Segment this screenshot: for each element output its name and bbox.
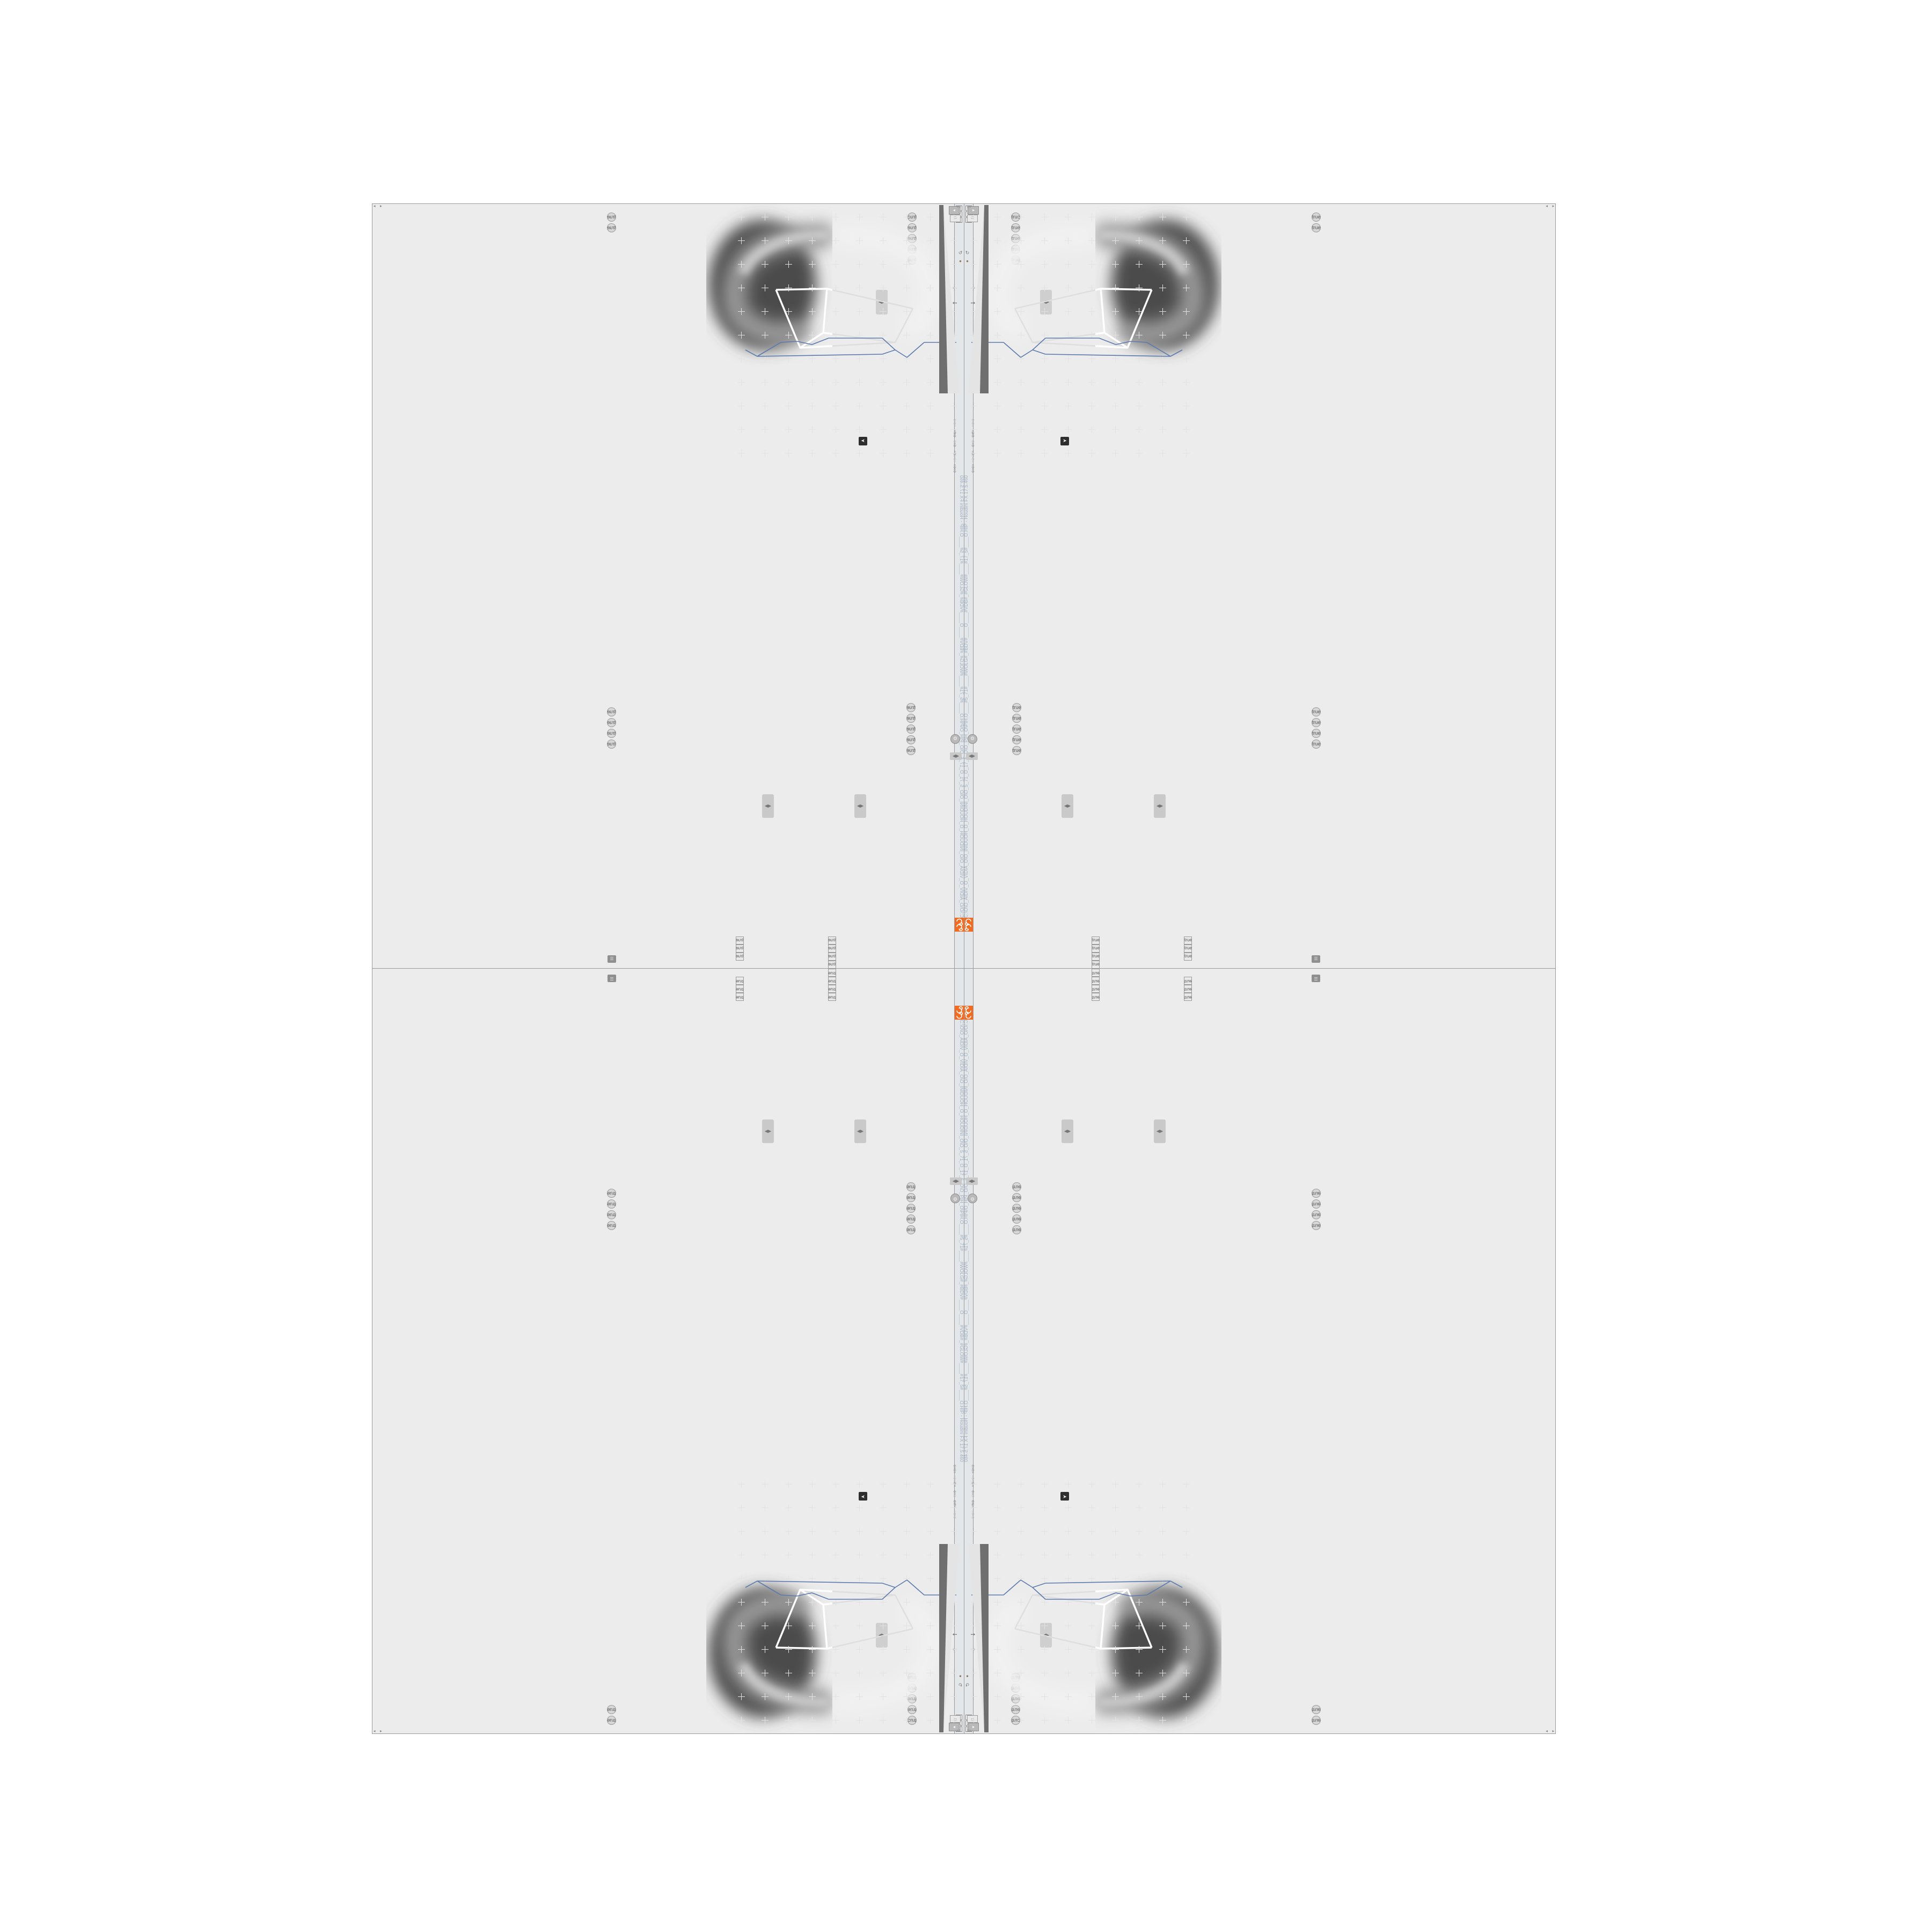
quadrant-top-left: C:\O\O_AIDIV_O_VIDIA_O\O_INIDUOH_O_HOUDI…	[372, 204, 964, 969]
info-icon: true	[906, 714, 916, 723]
ramp-add-icon: true	[1092, 936, 1100, 945]
ramp-add-icon: true	[1092, 993, 1100, 1001]
hscript-icon: true	[607, 1716, 616, 1725]
memory-icon: ●	[964, 259, 970, 265]
kaleidoscope-stage: C:\O\O_AIDIV_O_VIDIA_O\O_INIDUOH_O_HOUDI…	[0, 0, 1932, 1932]
scroll-arrow-icon[interactable]: ▸	[374, 1729, 376, 1733]
ramp-marker-icon: true	[828, 961, 836, 969]
ramp-add-icon: true	[736, 993, 744, 1001]
houdini-logo-icon	[964, 1006, 973, 1020]
refresh-icon[interactable]: ↻	[964, 1681, 970, 1687]
ramp-add-icon: true	[828, 936, 836, 945]
tab-close-icon[interactable]: ✕	[956, 1728, 959, 1732]
search-icon: true	[1312, 729, 1321, 738]
hscript-icon: true	[1012, 1193, 1021, 1202]
search-icon: true	[906, 724, 916, 734]
hscript-icon: true	[1312, 1189, 1321, 1198]
ramp-add-icon: true	[828, 993, 836, 1001]
help-icon: true	[1012, 703, 1021, 712]
take-gear-icon: ⚙	[968, 734, 977, 744]
info-icon: true	[1012, 714, 1021, 723]
switch-node-icon: ☰	[1312, 955, 1320, 963]
ramp-marker-icon: true	[1092, 961, 1100, 969]
search-icon: true	[1012, 1204, 1021, 1213]
ramp-expand-icon: true	[828, 977, 836, 985]
mode-spinner-icon[interactable]: ◀▶	[1154, 1119, 1166, 1143]
ramp-delete-icon: true	[1184, 945, 1192, 953]
gear-icon: true	[1312, 1705, 1321, 1714]
help-icon: true	[607, 707, 616, 716]
take-gear-icon: ⚙	[968, 1194, 977, 1203]
search-icon: true	[1012, 724, 1021, 734]
help-icon: true	[906, 703, 916, 712]
hscript-icon: true	[1312, 1716, 1321, 1725]
gear-icon: true	[1312, 223, 1321, 232]
nav-up-icon[interactable]: ⇧	[950, 1476, 960, 1485]
scroll-arrow-icon[interactable]: ▸	[1552, 204, 1554, 208]
search-icon: true	[607, 729, 616, 738]
info-icon: true	[607, 1210, 616, 1219]
nav-down-icon[interactable]: ⇩	[950, 1466, 960, 1474]
mode-spinner-icon[interactable]: ◀▶	[762, 794, 774, 818]
info-icon: true	[1312, 718, 1321, 727]
help-icon: true	[1312, 707, 1321, 716]
info-icon: true	[1012, 1214, 1021, 1224]
nav-up-icon[interactable]: ⇧	[968, 452, 978, 461]
nav-up-icon[interactable]: ⇧	[968, 1476, 978, 1485]
ramp-delete-icon: true	[1184, 985, 1192, 993]
hscript-icon: true	[906, 735, 916, 744]
ramp-delete-icon: true	[1092, 945, 1100, 953]
scroll-arrow-icon[interactable]: ◂	[380, 204, 382, 208]
nav-up-icon[interactable]: ⇧	[950, 452, 960, 461]
switch-node-icon: ☰	[1312, 975, 1320, 982]
hscript-icon: true	[607, 1189, 616, 1198]
info-icon: true	[1312, 1210, 1321, 1219]
scroll-arrow-icon[interactable]: ▸	[1552, 1729, 1554, 1733]
gear-icon: true	[1012, 1182, 1021, 1191]
quadrant-bottom-left: C:\O\O_AIDIV_O_VIDIA_O\O_INIDUOH_O_HOUDI…	[372, 969, 964, 1733]
hscript-icon: true	[607, 213, 616, 222]
ramp-expand-icon: true	[1092, 977, 1100, 985]
mode-spinner-icon[interactable]: ◀▶	[854, 1119, 866, 1143]
refresh-icon[interactable]: ↻	[957, 250, 963, 256]
switch-node-icon: ☰	[608, 955, 616, 963]
refresh-icon[interactable]: ↻	[964, 250, 970, 256]
search-icon: true	[906, 1204, 916, 1213]
scroll-arrow-icon[interactable]: ◂	[1546, 1729, 1548, 1733]
pane-link-icon: ◀▶	[950, 752, 962, 760]
tab-close-icon[interactable]: ✕	[956, 206, 959, 209]
mode-spinner-icon[interactable]: ◀▶	[854, 794, 866, 818]
nav-down-icon[interactable]: ⇩	[950, 463, 960, 472]
memory-icon: ●	[964, 1673, 970, 1679]
gear-icon: true	[906, 1182, 916, 1191]
pane-link-icon: ◀▶	[950, 1177, 962, 1185]
tab-close-icon[interactable]: ✕	[969, 206, 971, 209]
scroll-arrow-icon[interactable]: ◂	[380, 1729, 382, 1733]
hscript-icon: true	[1012, 735, 1021, 744]
info-icon: true	[906, 1214, 916, 1224]
gear-icon: true	[607, 223, 616, 232]
ramp-marker-icon: true	[1092, 969, 1100, 977]
ramp-delete-icon: true	[1092, 985, 1100, 993]
quadrant-bottom-right: C:\O\O_AIDIV_O_VIDIA_O\O_INIDUOH_O_HOUDI…	[964, 969, 1555, 1733]
houdini-logo-icon	[955, 918, 964, 932]
help-icon: true	[1012, 1225, 1021, 1234]
search-icon: true	[607, 1199, 616, 1209]
help-icon: true	[1312, 1221, 1321, 1230]
ramp-marker-icon: true	[1184, 977, 1192, 985]
take-gear-icon: ⚙	[950, 734, 960, 744]
hscript-icon: true	[1312, 213, 1321, 222]
scroll-arrow-icon[interactable]: ▸	[374, 204, 376, 208]
gear-icon: true	[906, 746, 916, 755]
hscript-icon: true	[1312, 740, 1321, 749]
houdini-logo-icon	[964, 918, 973, 932]
mode-spinner-icon[interactable]: ◀▶	[1062, 794, 1073, 818]
memory-icon: ●	[957, 259, 963, 265]
houdini-logo-icon	[955, 1006, 964, 1020]
help-icon: true	[607, 1221, 616, 1230]
nav-down-icon[interactable]: ⇩	[968, 1466, 978, 1474]
quadrant-top-right: C:\O\O_AIDIV_O_VIDIA_O\O_INIDUOH_O_HOUDI…	[964, 204, 1555, 969]
ramp-delete-icon: true	[736, 945, 744, 953]
pane-link-icon: ◀▶	[966, 1177, 978, 1185]
ramp-marker-icon: true	[828, 969, 836, 977]
ramp-add-icon: true	[1184, 993, 1192, 1001]
gear-icon: true	[607, 1705, 616, 1714]
memory-icon: ●	[957, 1673, 963, 1679]
ramp-delete-icon: true	[828, 985, 836, 993]
tab-close-icon[interactable]: ✕	[969, 1728, 971, 1732]
ramp-expand-icon: true	[1092, 953, 1100, 961]
ramp-expand-icon: true	[828, 953, 836, 961]
ramp-marker-icon: true	[736, 953, 744, 961]
nav-down-icon[interactable]: ⇩	[968, 463, 978, 472]
mode-spinner-icon[interactable]: ◀▶	[762, 1119, 774, 1143]
hscript-icon: true	[607, 740, 616, 749]
ramp-add-icon: true	[1184, 936, 1192, 945]
hscript-icon: true	[906, 1193, 916, 1202]
mode-spinner-icon[interactable]: ◀▶	[1062, 1119, 1073, 1143]
help-icon: true	[906, 1225, 916, 1234]
refresh-icon[interactable]: ↻	[957, 1681, 963, 1687]
pane-link-icon: ◀▶	[966, 752, 978, 760]
ramp-add-icon: true	[736, 936, 744, 945]
search-icon: true	[1312, 1199, 1321, 1209]
take-gear-icon: ⚙	[950, 1194, 960, 1203]
info-icon: true	[607, 718, 616, 727]
gear-icon: true	[1012, 746, 1021, 755]
switch-node-icon: ☰	[608, 975, 616, 982]
ramp-delete-icon: true	[828, 945, 836, 953]
scroll-arrow-icon[interactable]: ◂	[1546, 204, 1548, 208]
mode-spinner-icon[interactable]: ◀▶	[1154, 794, 1166, 818]
ramp-marker-icon: true	[1184, 953, 1192, 961]
ramp-delete-icon: true	[736, 985, 744, 993]
ramp-marker-icon: true	[736, 977, 744, 985]
